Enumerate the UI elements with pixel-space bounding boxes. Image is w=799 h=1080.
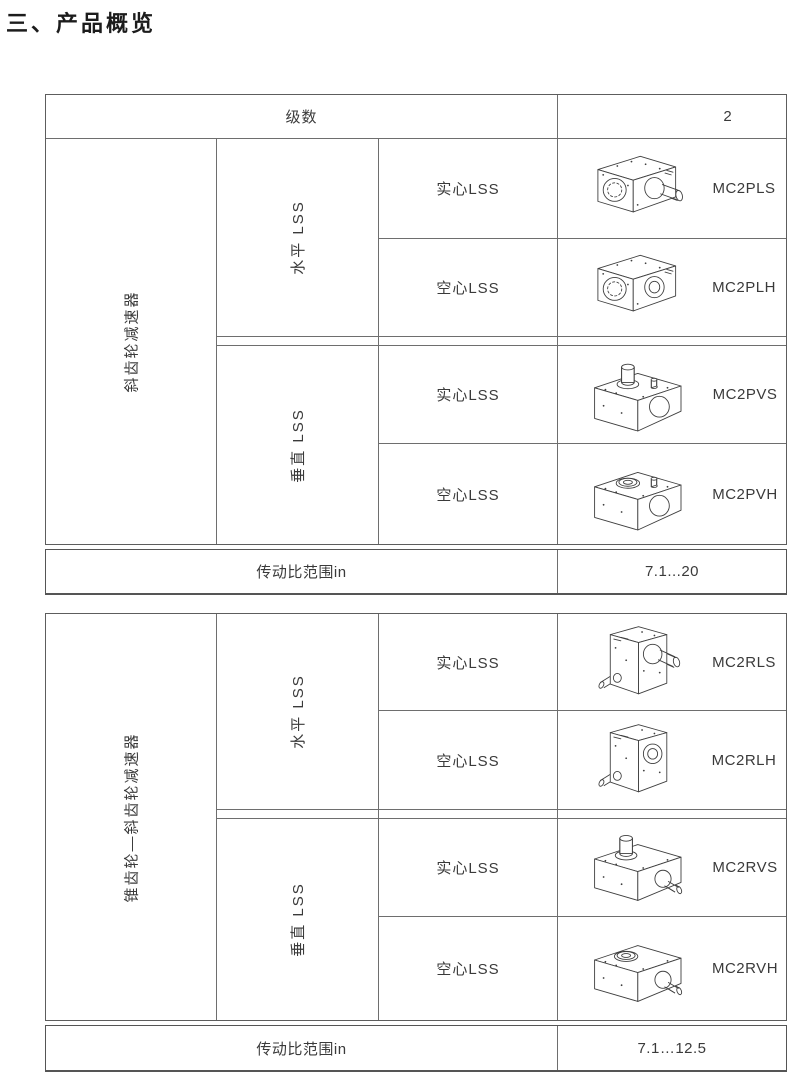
shaft-type-label: 空心LSS <box>436 750 499 771</box>
orientation-cell-horizontal: 水平 LSS <box>217 139 379 336</box>
bevel-gearbox-horizontal-hollow-drawing <box>582 718 688 802</box>
orientation-cell-vertical: 垂直 LSS <box>217 346 379 544</box>
category-label: 斜齿轮减速器 <box>120 290 141 392</box>
section-divider <box>217 809 379 819</box>
model-label: MC2RVS <box>690 859 786 876</box>
gearbox-vertical-hollow-drawing <box>582 452 690 536</box>
shaft-type-label: 空心LSS <box>436 484 499 505</box>
ratio-label: 传动比范围in <box>256 1038 346 1059</box>
gearbox-horizontal-hollow-drawing <box>582 247 688 329</box>
bevel-gearbox-horizontal-solid-drawing <box>582 620 688 704</box>
product-cell-mc2pls: MC2PLS <box>558 139 786 239</box>
ratio-value-cell: 7.1...20 <box>558 550 786 593</box>
bevel-helical-reducer-table: 锥齿轮—斜齿轮减速器 水平 LSS 实心LSS MC2RLS 空心LSS <box>45 613 787 1021</box>
shaft-type-cell: 实心LSS <box>379 139 558 239</box>
ratio-row-helical: 传动比范围in 7.1...20 <box>45 549 787 595</box>
ratio-value: 7.1…12.5 <box>637 1040 706 1057</box>
ratio-row-bevel-helical: 传动比范围in 7.1…12.5 <box>45 1025 787 1072</box>
stages-value: 2 <box>723 108 732 125</box>
stages-header-cell: 级数 <box>46 95 558 139</box>
orientation-cell-vertical: 垂直 LSS <box>217 819 379 1020</box>
product-cell-mc2pvs: MC2PVS <box>558 346 786 444</box>
category-label: 锥齿轮—斜齿轮减速器 <box>121 732 142 902</box>
shaft-type-cell: 空心LSS <box>379 917 558 1020</box>
product-cell-mc2plh: MC2PLH <box>558 239 786 336</box>
shaft-type-cell: 空心LSS <box>379 711 558 809</box>
model-label: MC2PLS <box>688 180 786 197</box>
orientation-label: 垂直 LSS <box>287 408 308 483</box>
section-divider <box>217 336 379 346</box>
product-cell-mc2rvh: MC2RVH <box>558 917 786 1020</box>
ratio-label: 传动比范围in <box>256 561 346 582</box>
ratio-label-cell: 传动比范围in <box>46 1026 558 1070</box>
bevel-gearbox-vertical-solid-drawing <box>582 826 690 910</box>
model-label: MC2PLH <box>688 279 786 296</box>
ratio-value-cell: 7.1…12.5 <box>558 1026 786 1070</box>
orientation-label: 水平 LSS <box>287 674 308 749</box>
shaft-type-cell: 空心LSS <box>379 239 558 336</box>
model-label: MC2PVS <box>690 386 786 403</box>
bevel-gearbox-vertical-hollow-drawing <box>582 927 690 1011</box>
shaft-type-label: 空心LSS <box>436 958 499 979</box>
section-divider <box>558 809 786 819</box>
stages-label: 级数 <box>285 106 317 127</box>
section-divider <box>558 336 786 346</box>
model-label: MC2PVH <box>690 486 786 503</box>
shaft-type-label: 实心LSS <box>436 857 499 878</box>
model-label: MC2RLS <box>688 654 786 671</box>
shaft-type-label: 实心LSS <box>436 384 499 405</box>
page-title: 三、产品概览 <box>6 6 156 38</box>
shaft-type-cell: 实心LSS <box>379 819 558 917</box>
product-cell-mc2rlh: MC2RLH <box>558 711 786 809</box>
shaft-type-label: 空心LSS <box>436 277 499 298</box>
helical-reducer-table: 级数 2 斜齿轮减速器 水平 LSS 实心LSS MC2PLS <box>45 94 787 545</box>
section-divider <box>379 809 558 819</box>
category-cell-helical: 斜齿轮减速器 <box>46 139 217 544</box>
orientation-cell-horizontal: 水平 LSS <box>217 614 379 809</box>
product-cell-mc2pvh: MC2PVH <box>558 444 786 544</box>
stages-value-cell: 2 <box>558 95 786 139</box>
orientation-label: 水平 LSS <box>287 200 308 275</box>
category-cell-bevel-helical: 锥齿轮—斜齿轮减速器 <box>46 614 217 1020</box>
model-label: MC2RVH <box>690 960 786 977</box>
gearbox-horizontal-solid-drawing <box>582 148 688 230</box>
shaft-type-label: 实心LSS <box>436 178 499 199</box>
shaft-type-cell: 空心LSS <box>379 444 558 544</box>
shaft-type-cell: 实心LSS <box>379 346 558 444</box>
orientation-label: 垂直 LSS <box>287 882 308 957</box>
shaft-type-label: 实心LSS <box>436 652 499 673</box>
gearbox-vertical-solid-drawing <box>582 353 690 437</box>
model-label: MC2RLH <box>688 752 786 769</box>
ratio-value: 7.1...20 <box>645 563 699 580</box>
product-cell-mc2rvs: MC2RVS <box>558 819 786 917</box>
section-divider <box>379 336 558 346</box>
shaft-type-cell: 实心LSS <box>379 614 558 711</box>
product-cell-mc2rls: MC2RLS <box>558 614 786 711</box>
ratio-label-cell: 传动比范围in <box>46 550 558 593</box>
